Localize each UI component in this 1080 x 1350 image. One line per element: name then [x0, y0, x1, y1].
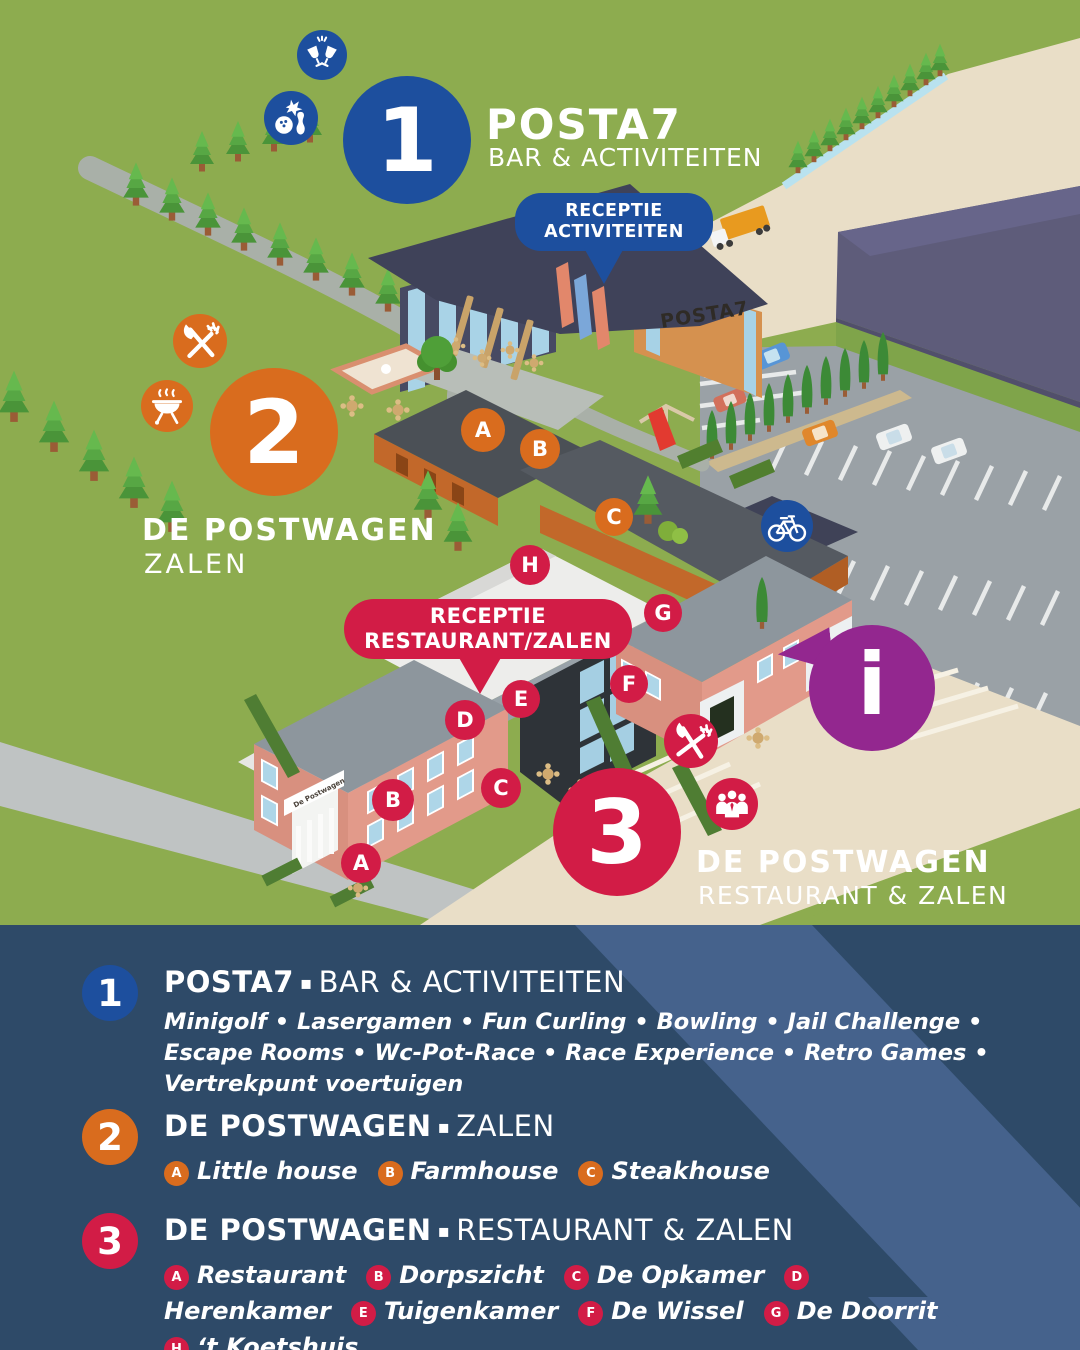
area2-subtitle: ZALEN — [144, 549, 248, 580]
legend-body-1: POSTA7▪BAR & ACTIVITEITEN Minigolf • Las… — [164, 965, 1064, 1100]
legend-item-label: De Opkamer — [597, 1261, 764, 1289]
map-marker-rest-h: H — [510, 545, 550, 585]
bbq-icon — [141, 380, 193, 432]
legend-item-label: De Wissel — [611, 1297, 743, 1325]
area-marker-2: 2 — [210, 368, 338, 496]
legend-heading-3: DE POSTWAGEN▪RESTAURANT & ZALEN — [164, 1213, 964, 1247]
map-marker-zalen-c: C — [595, 498, 633, 536]
area3-title: DE POSTWAGEN — [696, 845, 991, 880]
legend-item-label: Farmhouse — [411, 1157, 559, 1185]
cheers-icon — [297, 30, 347, 80]
legend-section-2: 2 DE POSTWAGEN▪ZALEN ALittle houseBFarmh… — [82, 1109, 790, 1189]
map-marker-rest-a: A — [341, 843, 381, 883]
legend-chip-c: C — [578, 1161, 603, 1186]
legend-section-1: 1 POSTA7▪BAR & ACTIVITEITEN Minigolf • L… — [82, 965, 1064, 1100]
legend-chip-h: H — [164, 1337, 189, 1350]
map-marker-rest-c: C — [481, 768, 521, 808]
legend-items-3: ARestaurantBDorpszichtCDe OpkamerDHerenk… — [164, 1257, 964, 1350]
legend-number-3: 3 — [82, 1213, 138, 1269]
legend-number-2: 2 — [82, 1109, 138, 1165]
legend-item-label: De Doorrit — [797, 1297, 938, 1325]
legend-number-1: 1 — [82, 965, 138, 1021]
legend-chip-b: B — [366, 1265, 391, 1290]
legend-chip-g: G — [764, 1301, 789, 1326]
legend-chip-b: B — [378, 1161, 403, 1186]
legend-number-text: 2 — [97, 1116, 123, 1159]
legend-number-text: 3 — [97, 1220, 123, 1263]
area3-subtitle: RESTAURANT & ZALEN — [698, 881, 1008, 910]
legend-panel: 1 POSTA7▪BAR & ACTIVITEITEN Minigolf • L… — [0, 925, 1080, 1350]
bicycle-icon — [761, 500, 813, 552]
legend-chip-a: A — [164, 1161, 189, 1186]
legend-item-label: Restaurant — [197, 1261, 346, 1289]
legend-activities-list: Minigolf • Lasergamen • Fun Curling • Bo… — [164, 1007, 1064, 1100]
area1-title: POSTA7 — [486, 100, 682, 149]
map-marker-rest-b: B — [372, 779, 414, 821]
legend-item-label: Tuigenkamer — [384, 1297, 558, 1325]
legend-body-3: DE POSTWAGEN▪RESTAURANT & ZALEN ARestaur… — [164, 1213, 964, 1350]
callout-receptie-activiteiten: RECEPTIE ACTIVITEITEN — [515, 193, 713, 251]
map-area: POSTA7 De Postwagen — [0, 0, 1080, 925]
map-marker-rest-f: F — [610, 665, 648, 703]
legend-chip-f: F — [578, 1301, 603, 1326]
legend-subtitle: RESTAURANT & ZALEN — [456, 1213, 794, 1247]
legend-chip-c: C — [564, 1265, 589, 1290]
area-number: 1 — [376, 89, 437, 192]
legend-heading-2: DE POSTWAGEN▪ZALEN — [164, 1109, 790, 1143]
legend-separator: ▪ — [432, 1221, 457, 1242]
area-marker-3: 3 — [553, 768, 681, 896]
legend-heading-1: POSTA7▪BAR & ACTIVITEITEN — [164, 965, 1064, 999]
legend-item-label: ‘t Koetshuis — [197, 1333, 358, 1350]
bowling-icon — [264, 91, 318, 145]
legend-subtitle: BAR & ACTIVITEITEN — [319, 965, 626, 999]
area-number: 2 — [243, 381, 304, 484]
legend-item-label: Dorpszicht — [399, 1261, 544, 1289]
map-marker-rest-d: D — [445, 700, 485, 740]
legend-title: DE POSTWAGEN — [164, 1109, 432, 1143]
callout-line: RECEPTIE — [430, 604, 546, 629]
legend-section-3: 3 DE POSTWAGEN▪RESTAURANT & ZALEN AResta… — [82, 1213, 964, 1350]
legend-title: DE POSTWAGEN — [164, 1213, 432, 1247]
legend-number-text: 1 — [97, 972, 123, 1015]
legend-item-label: Herenkamer — [164, 1297, 331, 1325]
callout-line: ACTIVITEITEN — [544, 222, 684, 243]
legend-body-2: DE POSTWAGEN▪ZALEN ALittle houseBFarmhou… — [164, 1109, 790, 1189]
legend-chip-a: A — [164, 1265, 189, 1290]
callout-line: RESTAURANT/ZALEN — [364, 629, 612, 654]
legend-items-2: ALittle houseBFarmhouseCSteakhouse — [164, 1153, 790, 1189]
legend-separator: ▪ — [432, 1117, 457, 1138]
map-marker-zalen-a: A — [461, 408, 505, 452]
legend-title: POSTA7 — [164, 965, 294, 999]
legend-chip-d: D — [784, 1265, 809, 1290]
area1-subtitle: BAR & ACTIVITEITEN — [488, 143, 762, 172]
dining-icon-orange — [173, 314, 227, 368]
legend-item-label: Steakhouse — [611, 1157, 769, 1185]
map-marker-rest-e: E — [502, 680, 540, 718]
area-number: 3 — [586, 781, 647, 884]
callout-line: RECEPTIE — [565, 201, 662, 222]
legend-item-label: Little house — [197, 1157, 358, 1185]
legend-subtitle: ZALEN — [456, 1109, 554, 1143]
venue-map-infographic: POSTA7 De Postwagen — [0, 0, 1080, 1350]
area-marker-1: 1 — [343, 76, 471, 204]
area2-title: DE POSTWAGEN — [142, 513, 437, 548]
info-icon: i — [809, 625, 935, 751]
callout-receptie-restaurant: RECEPTIE RESTAURANT/ZALEN — [344, 599, 632, 659]
map-marker-rest-g: G — [644, 594, 682, 632]
legend-separator: ▪ — [294, 973, 319, 994]
meeting-icon — [706, 778, 758, 830]
legend-chip-e: E — [351, 1301, 376, 1326]
info-symbol: i — [857, 642, 886, 728]
map-marker-zalen-b: B — [520, 429, 560, 469]
